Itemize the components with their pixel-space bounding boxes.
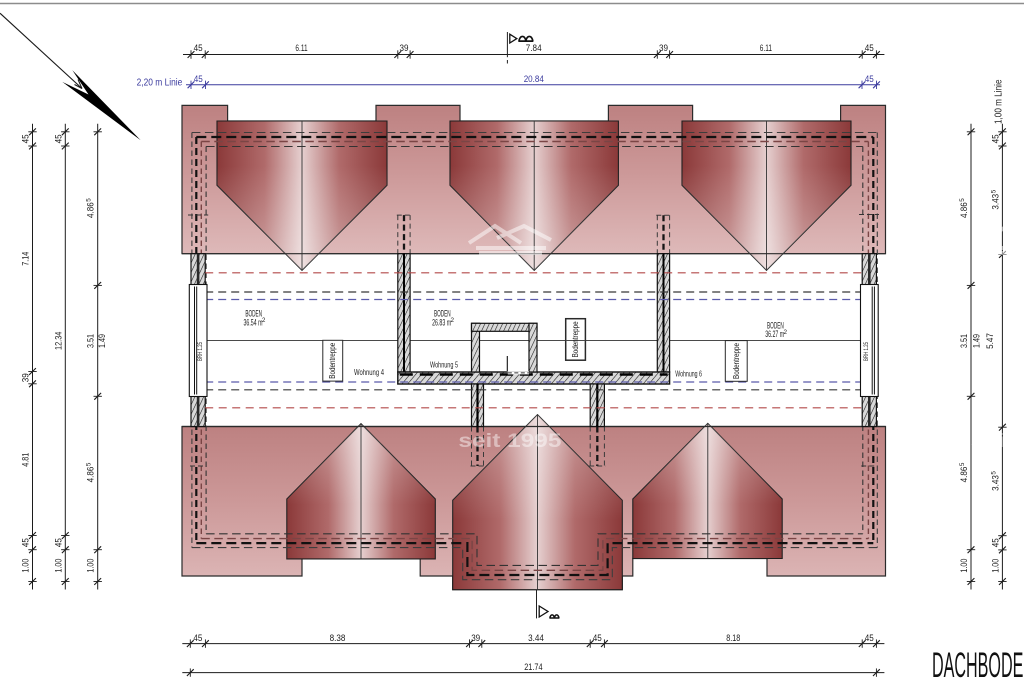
svg-text:3.43: 3.43 [990,194,1000,210]
svg-text:45: 45 [194,74,203,84]
svg-text:5: 5 [86,198,93,202]
svg-text:45: 45 [53,134,63,143]
svg-text:1.00: 1.00 [53,559,63,573]
svg-text:3.51: 3.51 [959,334,969,348]
svg-text:4.86: 4.86 [959,467,969,483]
svg-text:39: 39 [659,43,668,53]
svg-text:8.18: 8.18 [726,633,740,643]
svg-text:2,20 m Linie: 2,20 m Linie [137,77,183,88]
svg-text:6.11: 6.11 [760,43,772,53]
svg-text:45: 45 [193,633,202,643]
svg-text:5: 5 [86,462,93,466]
svg-text:seit 1995: seit 1995 [458,431,562,452]
svg-text:45: 45 [194,43,203,53]
svg-text:45: 45 [865,633,874,643]
svg-text:45: 45 [990,538,1000,547]
svg-text:36.27 m: 36.27 m [765,329,784,339]
svg-text:7.14: 7.14 [21,252,31,266]
svg-text:39: 39 [400,43,409,53]
svg-text:2: 2 [784,329,788,336]
svg-text:45: 45 [865,74,874,84]
svg-text:Wohnung 4: Wohnung 4 [354,368,384,377]
svg-text:4.86: 4.86 [959,202,969,218]
svg-text:45: 45 [53,538,63,547]
svg-text:1.00: 1.00 [990,559,1000,573]
svg-text:39: 39 [471,633,480,643]
svg-text:36.54 m: 36.54 m [244,317,263,327]
svg-text:7.84: 7.84 [526,43,542,53]
svg-text:Bodentreppe: Bodentreppe [571,321,580,357]
svg-text:45: 45 [21,538,31,547]
svg-text:45: 45 [865,43,874,53]
svg-text:4.86: 4.86 [86,467,96,483]
svg-text:1.49: 1.49 [97,334,107,348]
svg-text:4.86: 4.86 [86,202,96,218]
svg-text:12.34: 12.34 [53,332,63,350]
svg-text:1.00: 1.00 [21,559,31,573]
svg-text:seit 1995: seit 1995 [970,431,1024,452]
svg-text:3.51: 3.51 [86,334,96,348]
svg-text:5: 5 [990,471,997,475]
svg-text:BRH 1.25: BRH 1.25 [197,342,204,361]
svg-text:Bodentreppe: Bodentreppe [328,342,337,378]
svg-text:4.81: 4.81 [21,453,31,467]
svg-text:5: 5 [990,189,997,193]
svg-text:3.43: 3.43 [990,475,1000,491]
svg-text:2: 2 [262,317,266,324]
svg-text:1.00: 1.00 [86,559,96,573]
svg-text:3.44: 3.44 [528,633,544,643]
svg-text:1.49: 1.49 [972,334,982,348]
svg-text:20.84: 20.84 [524,74,544,84]
svg-text:45: 45 [21,134,31,143]
svg-text:45: 45 [990,134,1000,143]
svg-text:45: 45 [593,633,602,643]
svg-text:1.00: 1.00 [959,559,969,573]
svg-text:5: 5 [959,198,966,202]
svg-text:39: 39 [21,373,31,382]
svg-text:Bodentreppe: Bodentreppe [732,343,741,379]
svg-text:6.11: 6.11 [295,43,307,53]
svg-text:26.83 m: 26.83 m [432,317,451,327]
svg-text:21.74: 21.74 [524,662,542,672]
svg-text:DACHBODEN: DACHBODEN [932,646,1024,683]
svg-text:BRH 1.25: BRH 1.25 [863,342,870,361]
svg-text:5: 5 [959,462,966,466]
svg-text:1,00 m Linie: 1,00 m Linie [994,79,1005,124]
svg-text:8.38: 8.38 [330,633,346,643]
svg-text:Wohnung 5: Wohnung 5 [430,361,458,370]
svg-text:Wohnung 6: Wohnung 6 [675,369,702,378]
svg-text:5.47: 5.47 [985,333,995,349]
svg-text:2: 2 [450,317,454,324]
